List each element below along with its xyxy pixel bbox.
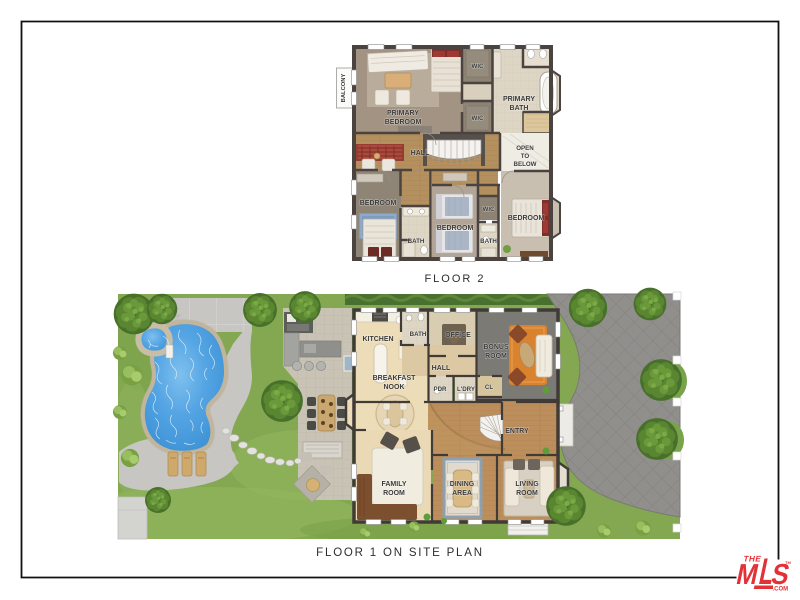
- svg-text:TM: TM: [785, 560, 791, 565]
- svg-text:TO: TO: [521, 153, 530, 160]
- svg-text:L'DRY: L'DRY: [457, 386, 476, 393]
- svg-text:ENTRY: ENTRY: [505, 428, 529, 435]
- svg-text:OFFICE: OFFICE: [445, 332, 471, 339]
- svg-text:BEDROOM: BEDROOM: [437, 225, 474, 232]
- svg-text:BATH: BATH: [510, 105, 529, 112]
- svg-text:FLOOR 1 ON SITE PLAN: FLOOR 1 ON SITE PLAN: [316, 547, 484, 559]
- svg-text:BATH: BATH: [480, 238, 497, 245]
- svg-text:.COM: .COM: [773, 587, 789, 593]
- svg-text:HALL: HALL: [411, 150, 430, 157]
- svg-text:BONUS: BONUS: [483, 344, 509, 351]
- svg-text:HALL: HALL: [432, 365, 451, 372]
- svg-text:PDR: PDR: [433, 386, 447, 393]
- svg-text:BEDROOM: BEDROOM: [508, 215, 545, 222]
- svg-text:BALCONY: BALCONY: [341, 74, 347, 103]
- svg-text:OPEN: OPEN: [516, 145, 534, 152]
- svg-text:WIC: WIC: [471, 63, 484, 70]
- svg-text:LIVING: LIVING: [515, 481, 539, 488]
- svg-text:PRIMARY: PRIMARY: [503, 96, 535, 103]
- svg-text:CL: CL: [485, 384, 493, 391]
- svg-text:PRIMARY: PRIMARY: [387, 110, 419, 117]
- svg-text:DINING: DINING: [450, 481, 475, 488]
- svg-text:BEDROOM: BEDROOM: [385, 119, 422, 126]
- svg-text:FLOOR 2: FLOOR 2: [424, 273, 485, 285]
- svg-text:BREAKFAST: BREAKFAST: [373, 375, 417, 382]
- svg-text:NOOK: NOOK: [384, 384, 405, 391]
- svg-text:BEDROOM: BEDROOM: [360, 200, 397, 207]
- svg-text:ROOM: ROOM: [485, 353, 507, 360]
- svg-text:KITCHEN: KITCHEN: [362, 336, 393, 343]
- svg-text:FAMILY: FAMILY: [381, 481, 406, 488]
- svg-text:BATH: BATH: [410, 331, 427, 338]
- svg-text:WIC: WIC: [482, 206, 495, 213]
- svg-text:WIC: WIC: [471, 115, 484, 122]
- svg-text:AREA: AREA: [452, 490, 472, 497]
- svg-text:BELOW: BELOW: [513, 161, 536, 168]
- svg-text:ROOM: ROOM: [516, 490, 538, 497]
- svg-text:BATH: BATH: [408, 238, 425, 245]
- svg-text:ROOM: ROOM: [383, 490, 405, 497]
